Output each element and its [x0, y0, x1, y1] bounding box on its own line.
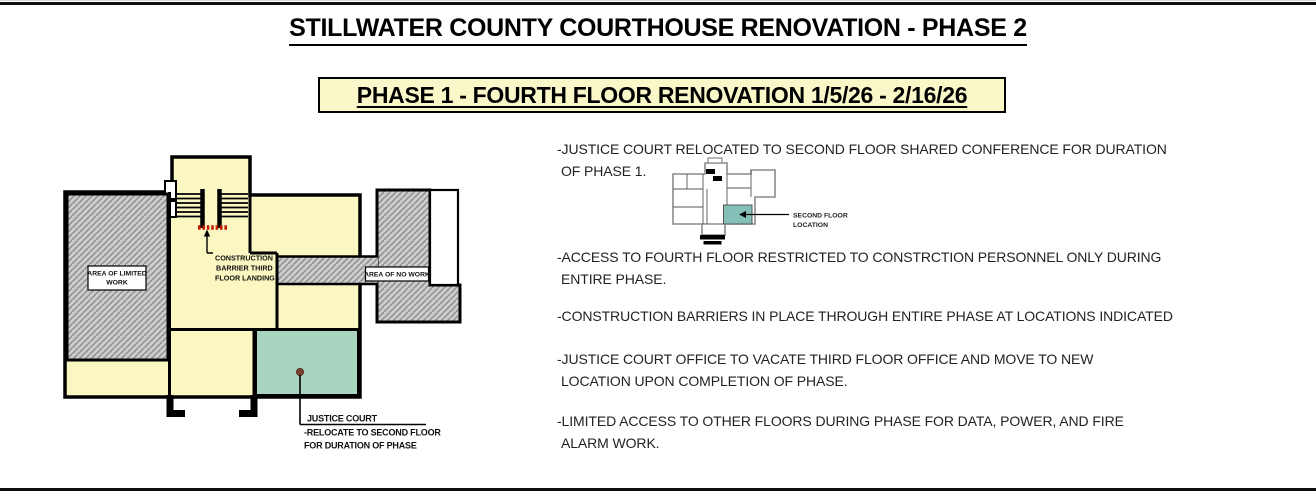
- top-edge-black-line: [0, 2, 1316, 5]
- area-no-work-label: AREA OF NO WORK: [364, 272, 430, 279]
- inset-entry-step-2: [704, 241, 722, 245]
- barrier-label-line3: FLOOR LANDING: [215, 274, 275, 283]
- no-work-stair-void: [430, 190, 458, 285]
- note-access-restricted: -ACCESS TO FOURTH FLOOR RESTRICTED TO CO…: [557, 247, 1251, 290]
- note-vacate-third-floor: -JUSTICE COURT OFFICE TO VACATE THIRD FL…: [557, 349, 1251, 392]
- inset-label-line1: SECOND FLOOR: [793, 213, 848, 220]
- header: STILLWATER COUNTY COURTHOUSE RENOVATION …: [0, 14, 1316, 46]
- area-limited-work-label-line1: AREA OF LIMITED: [87, 271, 146, 278]
- phase-banner-text: PHASE 1 - FOURTH FLOOR RENOVATION 1/5/26…: [357, 82, 967, 109]
- justice-court-label-line3: FOR DURATION OF PHASE: [304, 441, 417, 451]
- no-work-corridor: [279, 257, 379, 285]
- fourth-floor-plan: CONSTRUCTION BARRIER THIRD FLOOR LANDING…: [55, 145, 475, 460]
- note-limited-access: -LIMITED ACCESS TO OTHER FLOORS DURING P…: [557, 411, 1251, 454]
- inset-entry-step-1: [700, 235, 725, 240]
- note-construction-barriers: -CONSTRUCTION BARRIERS IN PLACE THROUGH …: [557, 306, 1251, 328]
- inset-label-line2: LOCATION: [793, 222, 828, 229]
- bottom-edge-black-line: [0, 488, 1316, 491]
- barrier-label-line2: BARRIER THIRD: [216, 264, 273, 273]
- page-title: STILLWATER COUNTY COURTHOUSE RENOVATION …: [289, 14, 1027, 46]
- justice-court-dot: [296, 368, 303, 375]
- justice-court-label-line1: JUSTICE COURT: [307, 414, 378, 424]
- phase-banner: PHASE 1 - FOURTH FLOOR RENOVATION 1/5/26…: [318, 77, 1006, 113]
- justice-court-label: JUSTICE COURT -RELOCATE TO SECOND FLOOR …: [304, 414, 441, 451]
- barrier-label-line1: CONSTRUCTION: [215, 254, 273, 263]
- note-justice-court-relocated: -JUSTICE COURT RELOCATED TO SECOND FLOOR…: [557, 139, 1251, 182]
- top-edge-gray-line: [0, 0, 1316, 1]
- area-limited-work-label-line2: WORK: [106, 280, 128, 287]
- construction-barrier-label: CONSTRUCTION BARRIER THIRD FLOOR LANDING: [215, 254, 275, 283]
- justice-court-room: [256, 330, 359, 396]
- justice-court-label-line2: -RELOCATE TO SECOND FLOOR: [304, 428, 441, 438]
